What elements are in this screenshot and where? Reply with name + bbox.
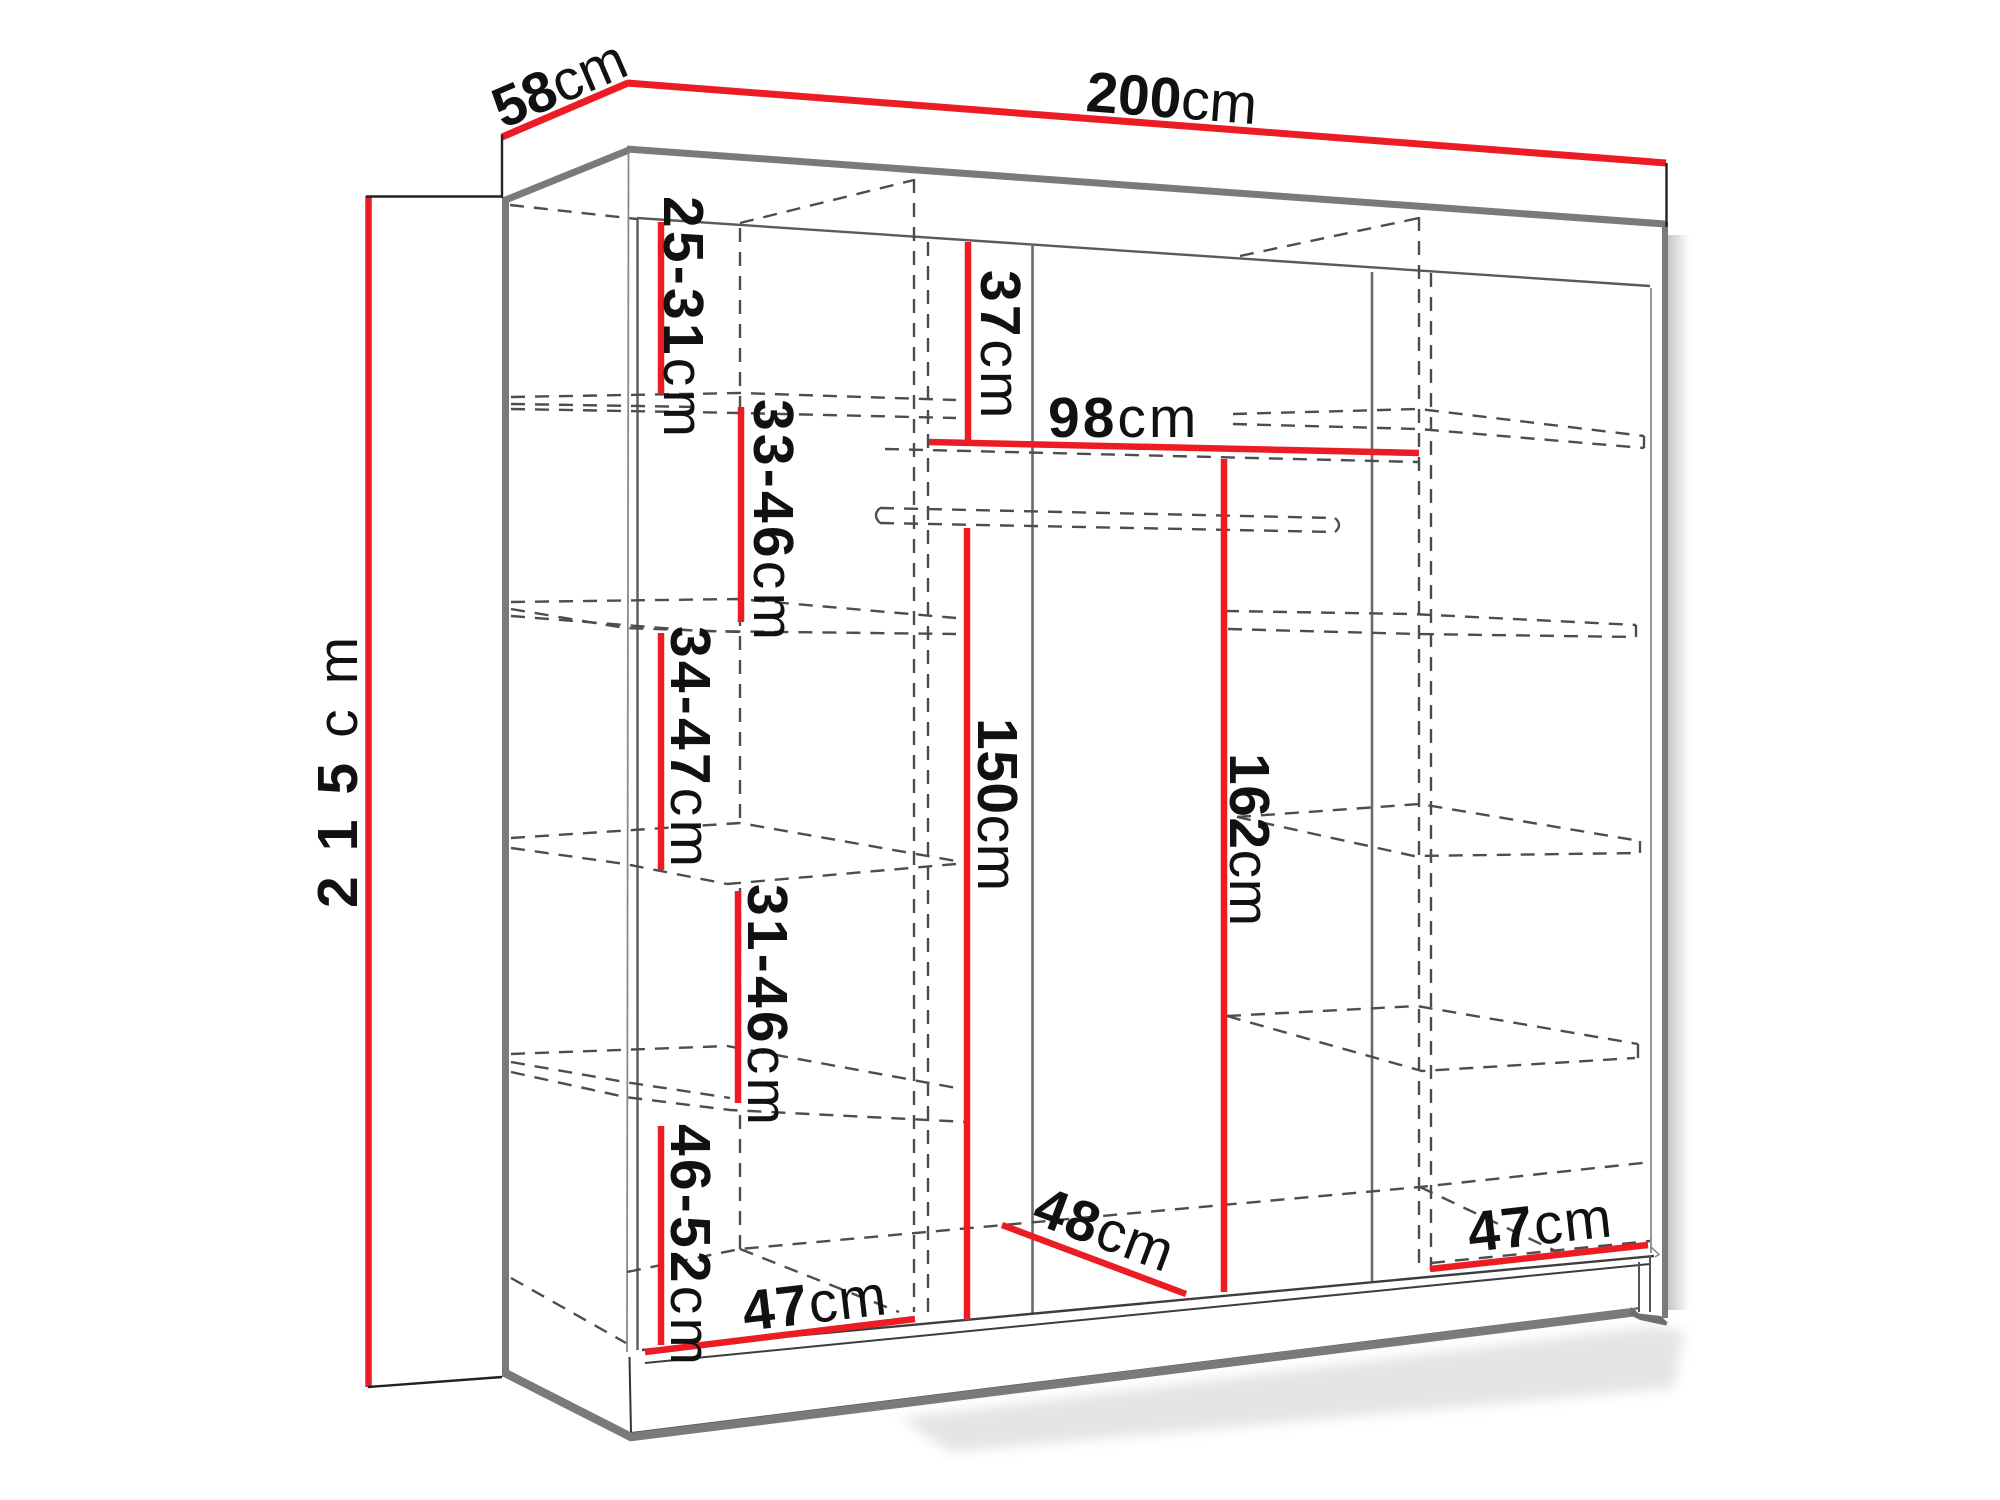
svg-text:33-46cm: 33-46cm: [741, 399, 805, 643]
svg-text:31-46cm: 31-46cm: [735, 884, 799, 1128]
svg-text:98cm: 98cm: [1048, 386, 1199, 450]
svg-text:150cm: 150cm: [965, 718, 1029, 892]
svg-text:200cm: 200cm: [1084, 60, 1259, 137]
svg-text:46-52cm: 46-52cm: [658, 1124, 722, 1368]
svg-text:215cm: 215cm: [306, 612, 370, 908]
svg-text:25-31cm: 25-31cm: [651, 196, 715, 440]
svg-text:162cm: 162cm: [1217, 753, 1281, 927]
svg-text:37cm: 37cm: [968, 270, 1032, 421]
svg-text:34-47cm: 34-47cm: [658, 626, 722, 870]
